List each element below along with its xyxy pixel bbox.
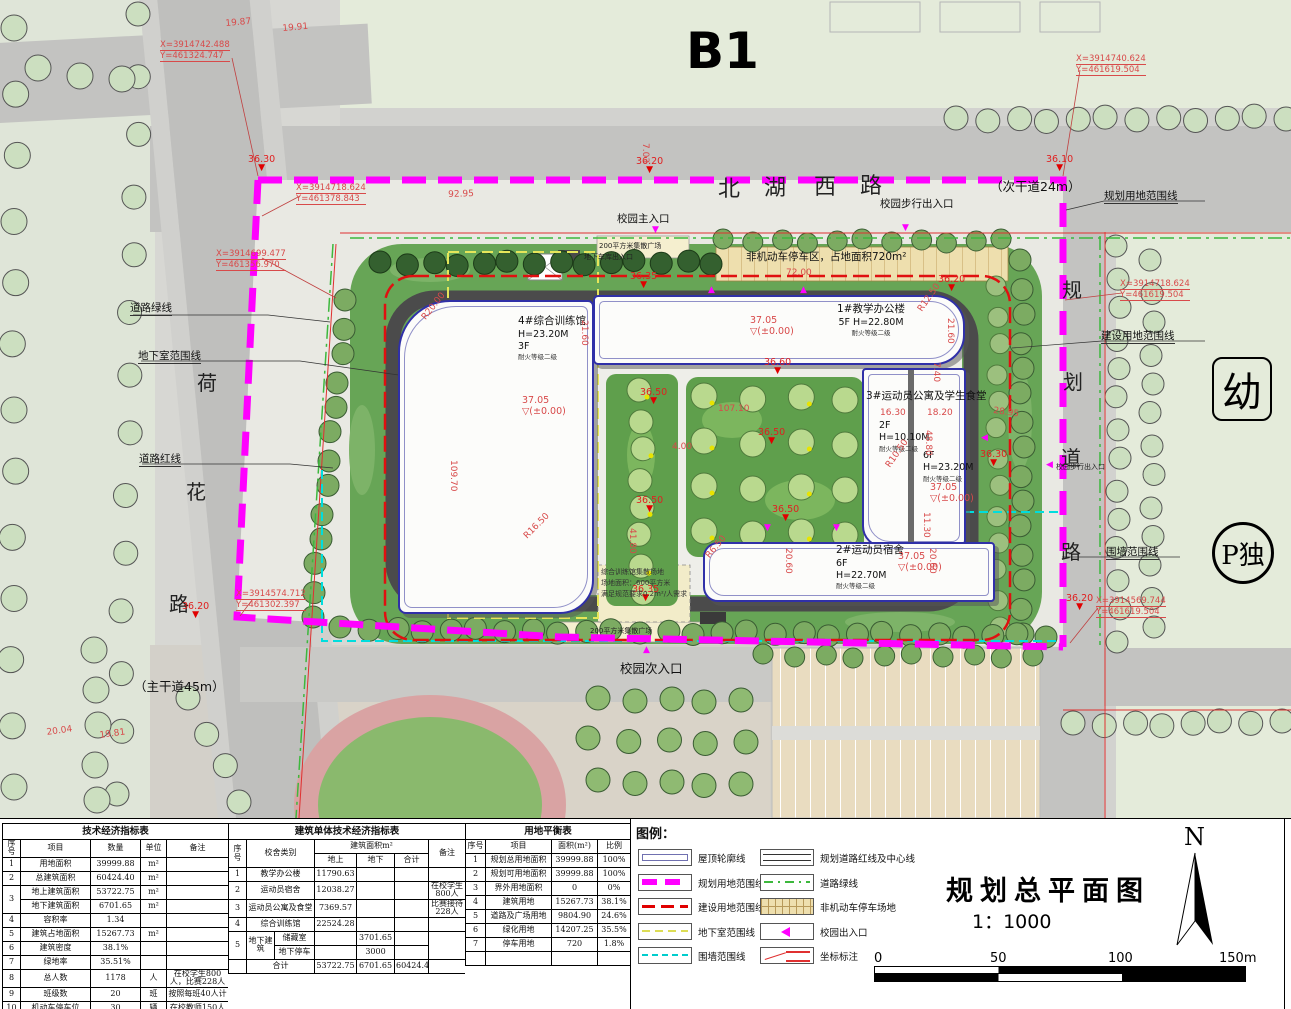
annotation-roadchar: 花: [186, 476, 206, 505]
table-row: 4综合训练馆22524.28: [229, 917, 466, 931]
table-cell: 单位: [141, 840, 167, 858]
table-cell: 1178: [91, 969, 141, 987]
annotation-entr: ▲: [800, 286, 807, 295]
tree-icon: [1239, 711, 1263, 735]
annotation-entr: ▼: [833, 524, 840, 533]
table-cell: 在校学生800人: [429, 882, 466, 900]
tree-icon: [84, 787, 110, 813]
table-cell: 1.34: [91, 913, 141, 927]
tree-icon: [4, 142, 30, 168]
tree-icon: [936, 233, 956, 253]
data-table: 用地平衡表序号项目面积(m²)比例1规划总用地面积39999.88100%2规划…: [465, 823, 630, 966]
table-cell: 建筑面积m²: [315, 840, 429, 854]
site-plan-sheet: 4#综合训练馆 H=23.20M 3F 耐火等级二级 1#教学办公楼 5F H=…: [0, 0, 1291, 1009]
table-row: 2规划可用地面积39999.88100%: [466, 868, 631, 882]
tree-icon: [213, 754, 237, 778]
table-building-unit-indicators: 建筑单体技术经济指标表序号校舍类别建筑面积m²备注地上地下合计1教学办公楼117…: [228, 823, 465, 1009]
table-cell: 在校教师150人: [167, 1001, 229, 1009]
table-cell: 综合训练馆: [247, 917, 315, 931]
building-height: H=23.20M: [518, 329, 586, 341]
table-cell: 7369.57: [315, 899, 357, 917]
table-cell: [357, 917, 395, 931]
legend-label: 建设用地范围线: [698, 900, 765, 914]
tree-icon: [944, 106, 968, 130]
table-row: 9班级数20班按照每班40人计: [3, 987, 229, 1001]
tree-icon: [1124, 711, 1148, 735]
annotation-elev: 36.50▼: [636, 496, 663, 513]
annotation-spot: 37.05▽(±0.00): [522, 396, 566, 418]
annotation-dim: 20.60: [927, 548, 937, 574]
tree-icon: [1, 209, 27, 235]
tree-icon: [990, 334, 1010, 354]
annotation-dim: 7.03: [640, 143, 650, 163]
table-cell: 地下建筑面积: [21, 899, 91, 913]
building-2-label: 2#运动员宿舍 6F H=22.70M 耐火等级二级: [836, 544, 904, 591]
annotation-coord: X=3914569.744Y=461619.504: [1096, 596, 1166, 618]
legend-label: 道路绿线: [820, 876, 858, 890]
annotation-roadchar: 路: [1061, 536, 1081, 565]
table-cell: 8: [3, 969, 21, 987]
table-cell: m²: [141, 899, 167, 913]
table-cell: 运动员宿舍: [247, 882, 315, 900]
table-land-use-balance: 用地平衡表序号项目面积(m²)比例1规划总用地面积39999.88100%2规划…: [465, 823, 630, 1009]
table-cell: 规划总用地面积: [486, 854, 552, 868]
tree-icon: [0, 647, 24, 673]
tree-icon: [1139, 249, 1161, 271]
annotation-lblS: 校园步行出入口: [1056, 462, 1105, 472]
table-cell: [167, 927, 229, 941]
tree-icon: [1184, 109, 1208, 133]
table-cell: 39999.88: [552, 868, 598, 882]
tree-icon: [118, 363, 142, 387]
tree-icon: [693, 732, 717, 756]
annotation-zone: B1: [686, 22, 759, 80]
annotation-elev: 36.50▼: [640, 388, 667, 405]
table-row: [466, 952, 631, 966]
table-cell: 备注: [429, 840, 466, 868]
title-panel: 技术经济指标表序号项目数量单位备注1用地面积39999.88m²2总建筑面积60…: [0, 818, 1291, 1009]
annotation-lblT: 综合训练馆集散场地场地面积：600平方米满足规范要求0.2m²/人需求: [601, 567, 687, 600]
tree-icon: [753, 644, 773, 664]
tree-icon: [333, 318, 355, 340]
tree-icon: [991, 648, 1011, 668]
table-cell: [167, 857, 229, 871]
kindergarten-marker: 幼: [1212, 357, 1272, 421]
tree-icon: [1181, 711, 1205, 735]
tree-icon: [1008, 107, 1032, 131]
tree-icon: [987, 365, 1007, 385]
tree-icon: [1143, 464, 1165, 486]
table-cell: 100%: [598, 854, 631, 868]
tree-icon: [25, 55, 51, 81]
table-row: 10机动车停车位30辆在校教师150人: [3, 1001, 229, 1009]
annotation-elev: 36.30▼: [980, 450, 1007, 467]
table-cell: 35.51%: [91, 955, 141, 969]
annotation-dim: 11.30: [921, 512, 931, 538]
table-cell: [395, 917, 429, 931]
sw-road-icon: [760, 849, 814, 866]
annotation-elev: 36.50▼: [758, 428, 785, 445]
sw-green-icon: [760, 874, 814, 891]
annotation-roadname: 北: [718, 171, 740, 203]
tree-icon: [1061, 711, 1085, 735]
building-floors: 2F: [879, 420, 930, 432]
annotation-lblM: （主干道45m）: [134, 676, 225, 695]
tree-icon: [0, 331, 25, 357]
building-fire-rating: 耐火等级二级: [796, 329, 946, 337]
annotation-roadchar: 划: [1063, 366, 1083, 395]
annotation-dim: 18.20: [927, 408, 953, 418]
tree-icon: [1143, 616, 1165, 638]
scale-bar-ticks: 0 50 100 150m: [874, 951, 1254, 966]
annotation-entr: ▲: [708, 286, 715, 295]
table-cell: [141, 955, 167, 969]
table-cell: 按照每班40人计: [167, 987, 229, 1001]
building-floors-height: 5F H=22.80M: [796, 317, 946, 329]
tree-icon: [713, 229, 733, 249]
tree-icon: [82, 752, 108, 778]
tree-icon: [678, 250, 700, 272]
annotation-elev: 36.35▼: [630, 272, 657, 289]
tree-icon: [660, 770, 684, 794]
table-row: 3地上建筑面积53722.75m²: [3, 885, 229, 899]
tree-icon: [1270, 709, 1291, 733]
tree-icon: [122, 243, 146, 267]
table-cell: 7: [466, 938, 486, 952]
building-4-label: 4#综合训练馆 H=23.20M 3F 耐火等级二级: [518, 315, 586, 362]
tree-icon: [1013, 569, 1035, 591]
tree-icon: [0, 524, 25, 550]
annotation-coord: X=3914718.624Y=461378.843: [296, 183, 366, 205]
tree-icon: [990, 475, 1010, 495]
tree-icon: [1093, 105, 1117, 129]
table-cell: 绿化用地: [486, 924, 552, 938]
table-cell: 1: [229, 868, 247, 882]
table-cell: 道路及广场用地: [486, 910, 552, 924]
scale-tick: 100: [1108, 951, 1133, 966]
table-cell: 数量: [91, 840, 141, 858]
table-cell: [466, 952, 486, 966]
table-cell: 720: [552, 938, 598, 952]
table-cell: m²: [141, 927, 167, 941]
annotation-coord: X=3914574.712Y=461302.397: [236, 589, 306, 611]
annotation-lblM: （次干道24m）: [990, 176, 1081, 195]
table-cell: 2: [229, 882, 247, 900]
table-cell: 6: [466, 924, 486, 938]
table-cell: 规划可用地面积: [486, 868, 552, 882]
annotation-spot: 37.05▽(±0.00): [930, 483, 974, 505]
tree-icon: [576, 726, 600, 750]
tree-icon: [832, 387, 858, 413]
table-row: 4容积率1.34: [3, 913, 229, 927]
tree-icon: [195, 722, 219, 746]
tree-icon: [991, 229, 1011, 249]
tree-icon: [1106, 631, 1128, 653]
tree-icon: [1, 774, 27, 800]
tree-icon: [875, 646, 895, 666]
table-cell: 项目: [486, 840, 552, 854]
annotation-lbl: 地下室范围线: [138, 348, 201, 364]
table-cell: 0%: [598, 882, 631, 896]
table-cell: 校舍类别: [247, 840, 315, 868]
table-cell: 2: [466, 868, 486, 882]
legend-label: 坐标标注: [820, 949, 858, 963]
tree-icon: [986, 418, 1006, 438]
drawing-title: 规划总平面图: [946, 869, 1150, 908]
annotation-elev: 36.20▼: [182, 602, 209, 619]
table-cell: [486, 952, 552, 966]
tree-icon: [1150, 714, 1174, 738]
table-cell: 地下建筑: [247, 931, 275, 959]
table-cell: [167, 899, 229, 913]
table-row: 6建筑密度38.1%: [3, 941, 229, 955]
table-cell: 53722.75: [315, 959, 357, 973]
annotation-entr: ▼: [652, 226, 659, 235]
table-cell: [357, 882, 395, 900]
tree-icon: [623, 772, 647, 796]
annotation-elev: 36.30▼: [248, 155, 275, 172]
table-cell: 4: [466, 896, 486, 910]
tree-icon: [1141, 435, 1163, 457]
annotation-coord: X=3914699.477Y=461356.970: [216, 249, 286, 271]
tree-icon: [1066, 107, 1090, 131]
tree-icon: [1009, 249, 1031, 271]
table-row: 4建筑用地15267.7338.1%: [466, 896, 631, 910]
tree-icon: [424, 252, 446, 274]
annotation-elev: 36.60▼: [764, 358, 791, 375]
annotation-elev: 36.20▼: [938, 275, 965, 292]
table-cell: 24.6%: [598, 910, 631, 924]
table-title: 建筑单体技术经济指标表: [229, 824, 466, 840]
shrub-dot-icon: [710, 491, 715, 496]
annotation-spot: 37.05▽(±0.00): [750, 316, 794, 338]
drawing-scale: 1：1000: [972, 907, 1051, 934]
table-cell: 人: [141, 969, 167, 987]
table-cell: 12038.27: [315, 882, 357, 900]
tree-icon: [700, 253, 722, 275]
tree-icon: [1139, 402, 1161, 424]
table-cell: 1.8%: [598, 938, 631, 952]
tree-icon: [740, 476, 766, 502]
table-cell: 60424.40: [91, 871, 141, 885]
tree-icon: [1009, 515, 1031, 537]
annotation-dim: 20.60: [783, 548, 793, 574]
table-cell: 20: [91, 987, 141, 1001]
table-row: 3运动员公寓及食堂7369.57比赛接待228人: [229, 899, 466, 917]
tree-icon: [325, 396, 347, 418]
tree-icon: [114, 541, 138, 565]
tree-icon: [3, 81, 29, 107]
annotation-dim: 48.80: [923, 430, 933, 456]
tree-icon: [586, 768, 610, 792]
table-cell: 建筑占地面积: [21, 927, 91, 941]
tree-icon: [692, 690, 716, 714]
annotation-coord: X=3914740.624Y=461619.504: [1076, 54, 1146, 76]
table-cell: 22524.28: [315, 917, 357, 931]
tree-icon: [3, 270, 29, 296]
table-row: 5建筑占地面积15267.73m²: [3, 927, 229, 941]
table-row: 地下建筑面积6701.65m²: [3, 899, 229, 913]
table-cell: 比赛接待228人: [429, 899, 466, 917]
table-cell: 班级数: [21, 987, 91, 1001]
table-cell: 3: [3, 885, 21, 913]
tree-icon: [1092, 714, 1116, 738]
table-cell: 38.1%: [91, 941, 141, 955]
table-cell: 辆: [141, 1001, 167, 1009]
tree-icon: [523, 253, 545, 275]
table-cell: 3000: [357, 945, 395, 959]
scale-bar-row: [874, 974, 1246, 982]
legend-label: 屋顶轮廓线: [698, 851, 746, 865]
table-cell: [395, 931, 429, 945]
tree-icon: [1215, 106, 1239, 130]
annotation-lbl: 建设用地范围线: [1101, 328, 1175, 344]
table-row: 1规划总用地面积39999.88100%: [466, 854, 631, 868]
tree-icon: [369, 251, 391, 273]
tree-icon: [1011, 544, 1033, 566]
scale-tick: 150m: [1219, 951, 1256, 966]
tree-icon: [113, 484, 137, 508]
table-cell: 地下: [357, 854, 395, 868]
tree-icon: [1013, 436, 1035, 458]
table-cell: 总人数: [21, 969, 91, 987]
table-row: 1用地面积39999.88m²: [3, 857, 229, 871]
tree-icon: [729, 772, 753, 796]
tree-icon: [1109, 447, 1131, 469]
tree-icon: [660, 687, 684, 711]
tree-icon: [1010, 466, 1032, 488]
annotation-lbl: 非机动车停车区，占地面积720m²: [746, 249, 906, 264]
table-cell: 0: [552, 882, 598, 896]
tree-icon: [976, 109, 1000, 133]
tree-icon: [496, 250, 518, 272]
tree-icon: [1106, 480, 1128, 502]
scale-tick: 0: [874, 951, 882, 966]
legend-title: 图例：: [636, 823, 675, 842]
parking-badge: P独: [1212, 522, 1274, 584]
table-cell: [167, 871, 229, 885]
annotation-dim: 21.60: [579, 320, 589, 346]
tree-icon: [332, 343, 354, 365]
sw-roof-icon: [638, 849, 692, 866]
tree-icon: [852, 229, 872, 249]
building-floors: 6F: [836, 558, 904, 570]
annotation-lblS: 地下车库出入口: [584, 252, 633, 262]
table-cell: [167, 885, 229, 899]
table-cell: 序号: [466, 840, 486, 854]
table-cell: 5: [229, 931, 247, 959]
shrub-dot-icon: [807, 537, 812, 542]
tree-icon: [396, 254, 418, 276]
table-cell: m²: [141, 857, 167, 871]
table-cell: 39999.88: [91, 857, 141, 871]
tree-icon: [617, 730, 641, 754]
table-cell: 地上建筑面积: [21, 885, 91, 899]
tree-icon: [1140, 345, 1162, 367]
table-cell: 地下停车: [275, 945, 315, 959]
tree-icon: [1010, 333, 1032, 355]
table-row: 3界外用地面积00%: [466, 882, 631, 896]
data-table: 建筑单体技术经济指标表序号校舍类别建筑面积m²备注地上地下合计1教学办公楼117…: [228, 823, 465, 974]
tree-icon: [227, 790, 251, 814]
shrub-dot-icon: [649, 453, 654, 458]
annotation-dim: 4.00: [672, 442, 692, 452]
tree-icon: [734, 730, 758, 754]
annotation-dim: 21.60: [945, 318, 955, 344]
tree-icon: [1108, 358, 1130, 380]
north-arrow-icon: [1163, 825, 1227, 951]
table-cell: 班: [141, 987, 167, 1001]
tree-icon: [1009, 382, 1031, 404]
tree-icon: [1157, 106, 1181, 130]
tree-icon: [692, 774, 716, 798]
annotation-lbl: 校园步行出入口: [880, 196, 954, 211]
table-row: 7绿地率35.51%: [3, 955, 229, 969]
annotation-dim: 41.80: [627, 528, 637, 554]
annotation-dim: 16.30: [880, 408, 906, 418]
table-row: 5地下建筑储藏室3701.65: [229, 931, 466, 945]
legend-label: 围墙范围线: [698, 949, 746, 963]
table-cell: 运动员公寓及食堂: [247, 899, 315, 917]
table-cell: 面积(m²): [552, 840, 598, 854]
tree-icon: [0, 713, 25, 739]
tree-icon: [1013, 303, 1035, 325]
annotation-dim: 109.70: [448, 460, 458, 492]
table-cell: 15267.73: [91, 927, 141, 941]
table-cell: 14207.25: [552, 924, 598, 938]
table-cell: 39999.88: [552, 854, 598, 868]
sw-park-icon: [760, 898, 814, 915]
tree-icon: [1034, 109, 1058, 133]
building-fire-rating: 耐火等级二级: [518, 353, 586, 361]
tree-icon: [933, 647, 953, 667]
sw-mag-icon: [638, 874, 692, 891]
table-cell: 备注: [167, 840, 229, 858]
tree-icon: [586, 686, 610, 710]
table-cell: 合计: [247, 959, 315, 973]
annotation-lblM: 校园次入口: [620, 658, 683, 677]
table-cell: 界外用地面积: [486, 882, 552, 896]
tree-icon: [3, 458, 29, 484]
tree-icon: [551, 251, 573, 273]
tree-icon: [1105, 386, 1127, 408]
sw-coord-icon: [760, 947, 814, 964]
annotation-roadname: 路: [860, 168, 882, 200]
shrub-dot-icon: [807, 402, 812, 407]
building-name: 3#运动员公寓及学生食堂: [866, 390, 986, 404]
tree-icon: [319, 421, 341, 443]
annotation-lbl: 道路红线: [139, 451, 181, 467]
table-row: 合计53722.756701.6560424.40: [229, 959, 466, 973]
tree-icon: [83, 677, 109, 703]
building-height: H=23.20M: [923, 462, 974, 474]
table-cell: 2: [3, 871, 21, 885]
table-cell: 教学办公楼: [247, 868, 315, 882]
scale-tick: 50: [990, 951, 1007, 966]
table-cell: 15267.73: [552, 896, 598, 910]
annotation-lblS: 200平方米集散广场: [590, 626, 652, 636]
annotation-elev: 36.50▼: [772, 505, 799, 522]
tree-icon: [1, 15, 27, 41]
table-technical-indicators: 技术经济指标表序号项目数量单位备注1用地面积39999.88m²2总建筑面积60…: [2, 823, 228, 1009]
tree-icon: [334, 289, 356, 311]
tree-icon: [1012, 490, 1034, 512]
table-cell: 1: [466, 854, 486, 868]
scale-bar-row: [874, 966, 1246, 974]
table-cell: 3701.65: [357, 931, 395, 945]
sw-cyan-icon: [638, 947, 692, 964]
sw-ent-icon: [760, 923, 814, 940]
